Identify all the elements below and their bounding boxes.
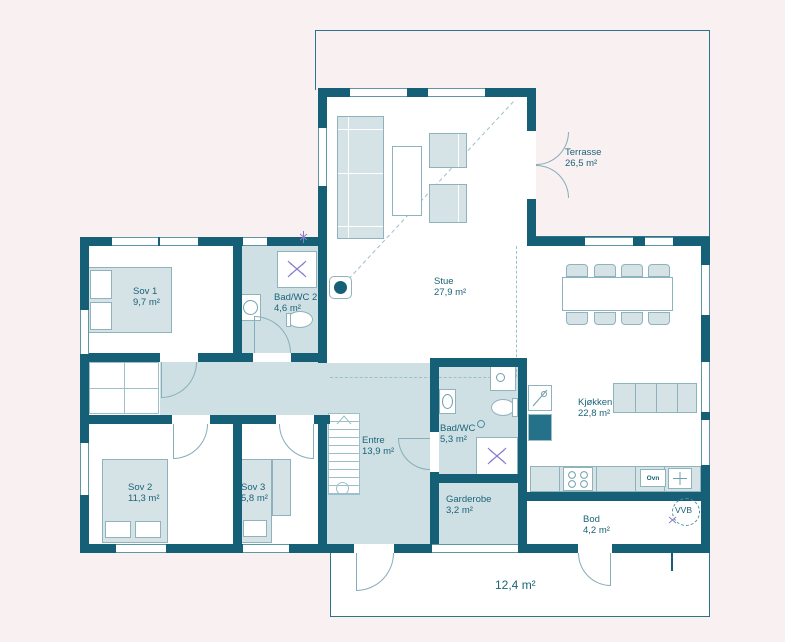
window (428, 88, 485, 97)
room-label-sov3: Sov 3 5,8 m² (241, 482, 268, 504)
room-label-kjokken: Kjøkken 22,8 m² (578, 397, 612, 419)
window (243, 544, 289, 553)
room-name: Sov 1 (133, 286, 160, 297)
oven-icon: Ovn (640, 469, 666, 487)
room-name: Garderobe (446, 494, 491, 505)
room-name: Entre (362, 435, 394, 446)
stairs-start-icon (336, 482, 349, 495)
door-leaf (173, 424, 174, 459)
room-label-bod: Bod 4,2 m² (583, 514, 610, 536)
kitchen-counter-icon (613, 383, 697, 413)
room-area: 26,5 m² (565, 158, 601, 169)
room-area: 5,8 m² (241, 493, 268, 504)
window (432, 544, 518, 553)
dining-chair-icon (594, 312, 616, 325)
sink-basin (243, 300, 258, 315)
room-name: Bad/WC (440, 423, 475, 434)
window (160, 237, 198, 246)
room-area: 27,9 m² (434, 287, 466, 298)
room-area: 22,8 m² (578, 408, 612, 419)
window (350, 88, 407, 97)
door-opening (253, 353, 291, 362)
door-leaf (610, 553, 611, 586)
door-leaf (398, 438, 430, 439)
toilet-tank (286, 313, 291, 327)
room-area: 4,6 m² (274, 303, 317, 314)
washing-machine-icon (490, 364, 516, 391)
pillow-icon (105, 521, 131, 538)
coffee-table-icon (392, 146, 422, 216)
door-opening (172, 415, 210, 424)
fireplace-icon (329, 276, 352, 299)
room-area: 3,2 m² (446, 505, 491, 516)
window (701, 265, 710, 315)
washer-drum (496, 373, 505, 382)
room-label-uteplass: 12,4 m² (495, 579, 536, 592)
shower-icon (476, 437, 518, 475)
wall (518, 358, 527, 553)
floor-drain-icon (477, 420, 485, 428)
window (645, 237, 673, 246)
dining-chair-icon (566, 312, 588, 325)
window (243, 237, 267, 246)
room-label-terrasse: Terrasse 26,5 m² (565, 147, 601, 169)
door-leaf (254, 316, 255, 353)
drain-valve-icon (667, 515, 678, 525)
fireplace-core (334, 281, 347, 294)
fridge-icon (528, 414, 552, 441)
door-opening (527, 131, 536, 199)
dining-chair-icon (594, 264, 616, 277)
floor-plan: Ovn (0, 0, 785, 642)
window (701, 420, 710, 465)
wall (430, 358, 527, 367)
door-opening (578, 544, 612, 553)
dining-chair-icon (621, 264, 643, 277)
room-label-sov2: Sov 2 11,3 m² (128, 482, 160, 504)
window (116, 544, 166, 553)
room-area: 5,3 m² (440, 434, 475, 445)
kitchen-sink-icon (528, 385, 552, 411)
dining-chair-icon (566, 264, 588, 277)
closet-grid-icon (89, 362, 159, 414)
stairs-up-arrow-icon (335, 414, 353, 426)
room-name: Sov 2 (128, 482, 160, 493)
room-name: Terrasse (565, 147, 601, 158)
door-leaf (356, 553, 357, 591)
door-opening (160, 353, 198, 362)
room-area: 11,3 m² (128, 493, 160, 504)
room-area: 13,9 m² (362, 446, 394, 457)
room-name: Kjøkken (578, 397, 612, 408)
dining-chair-icon (648, 264, 670, 277)
wall (318, 424, 327, 544)
pillow-icon (243, 520, 267, 537)
vent-pipe-icon (298, 230, 309, 244)
dining-chair-icon (621, 312, 643, 325)
door-leaf (313, 424, 314, 459)
window (112, 237, 158, 246)
pillow-icon (90, 270, 112, 299)
sofa-icon (337, 116, 384, 239)
room-name: Stue (434, 276, 466, 287)
room-name: Bod (583, 514, 610, 525)
room-name: Sov 3 (241, 482, 268, 493)
room-label-badwc2: Bad/WC 2 4,6 m² (274, 292, 317, 314)
room-area: 9,7 m² (133, 297, 160, 308)
door-opening (354, 544, 394, 553)
room-area: 12,4 m² (495, 579, 536, 592)
sink-basin (442, 394, 453, 409)
wall (430, 483, 439, 553)
wall (80, 237, 89, 553)
door-leaf (161, 362, 162, 398)
window (80, 443, 89, 495)
room-label-badwc: Bad/WC 5,3 m² (440, 423, 475, 445)
wardrobe-icon (272, 459, 291, 516)
pillow-icon (135, 521, 161, 538)
armchair-icon (429, 133, 467, 168)
armchair-icon (429, 184, 467, 223)
room-label-stue: Stue 27,9 m² (434, 276, 466, 298)
room-name: Bad/WC 2 (274, 292, 317, 303)
stove-icon (563, 467, 593, 491)
room-label-garderobe: Garderobe 3,2 m² (446, 494, 491, 516)
dining-chair-icon (648, 312, 670, 325)
room-fill-corridor-join (318, 363, 327, 415)
wall (430, 474, 527, 483)
oven-label: Ovn (641, 475, 665, 482)
wall (233, 246, 242, 353)
downpipe-icon (671, 553, 673, 571)
dishwasher-icon (668, 468, 692, 489)
door-opening (276, 415, 314, 424)
door-opening (430, 432, 439, 472)
window (318, 128, 327, 186)
room-label-entre: Entre 13,9 m² (362, 435, 394, 457)
window (701, 362, 710, 412)
shower-icon (277, 251, 317, 288)
room-area: 4,2 m² (583, 525, 610, 536)
window (585, 237, 633, 246)
room-label-sov1: Sov 1 9,7 m² (133, 286, 160, 308)
pillow-icon (90, 302, 112, 330)
openplan-boundary-h (330, 377, 516, 378)
dining-table-icon (562, 277, 673, 311)
window (80, 310, 89, 354)
bathroom-sink-icon (439, 389, 456, 414)
